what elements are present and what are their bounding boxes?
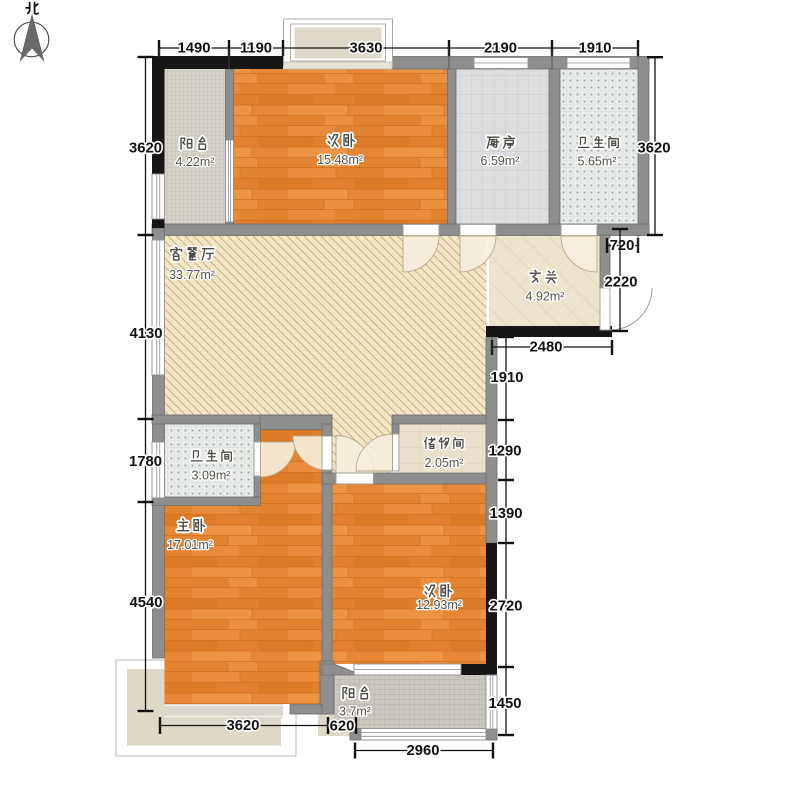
svg-text:1490: 1490 bbox=[178, 41, 211, 57]
svg-text:3.7m²: 3.7m² bbox=[339, 705, 371, 719]
svg-text:4.22m²: 4.22m² bbox=[176, 155, 215, 169]
svg-text:1780: 1780 bbox=[129, 454, 162, 470]
svg-text:1450: 1450 bbox=[489, 696, 522, 712]
svg-text:12.93m²: 12.93m² bbox=[416, 598, 462, 612]
svg-text:620: 620 bbox=[330, 719, 355, 735]
svg-text:2960: 2960 bbox=[407, 743, 440, 759]
svg-text:3620: 3620 bbox=[129, 141, 162, 157]
svg-text:6.59m²: 6.59m² bbox=[481, 154, 520, 168]
svg-text:720: 720 bbox=[610, 238, 635, 254]
svg-text:1290: 1290 bbox=[489, 444, 522, 460]
svg-text:2220: 2220 bbox=[605, 275, 638, 291]
svg-text:4.92m²: 4.92m² bbox=[526, 290, 565, 304]
svg-text:1190: 1190 bbox=[240, 41, 272, 57]
svg-text:3620: 3620 bbox=[638, 141, 671, 157]
svg-text:2480: 2480 bbox=[530, 340, 563, 356]
svg-text:17.01m²: 17.01m² bbox=[167, 538, 213, 552]
svg-text:2720: 2720 bbox=[490, 599, 523, 615]
svg-text:3.09m²: 3.09m² bbox=[192, 469, 231, 483]
svg-text:4130: 4130 bbox=[130, 326, 163, 342]
svg-text:2190: 2190 bbox=[484, 41, 517, 57]
svg-text:2.05m²: 2.05m² bbox=[425, 456, 464, 470]
svg-text:15.48m²: 15.48m² bbox=[317, 153, 363, 167]
svg-text:1910: 1910 bbox=[491, 370, 524, 386]
svg-text:1910: 1910 bbox=[579, 41, 612, 57]
svg-text:5.65m²: 5.65m² bbox=[578, 155, 617, 169]
svg-text:4540: 4540 bbox=[130, 595, 163, 611]
svg-text:33.77m²: 33.77m² bbox=[169, 268, 215, 282]
svg-text:3620: 3620 bbox=[227, 718, 260, 734]
svg-text:3630: 3630 bbox=[350, 41, 383, 57]
svg-text:1390: 1390 bbox=[490, 506, 523, 522]
